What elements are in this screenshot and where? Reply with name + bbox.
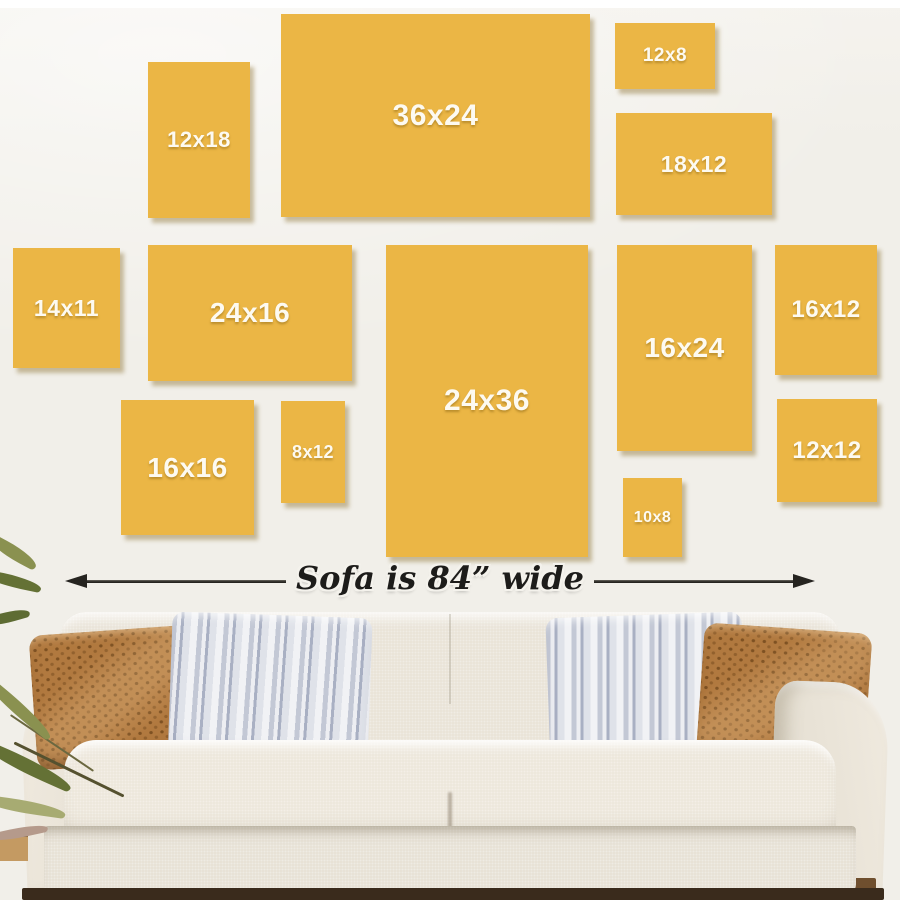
size-box-label: 14x11 bbox=[34, 295, 99, 322]
size-box-label: 24x16 bbox=[210, 297, 290, 329]
size-box-16x24: 16x24 bbox=[617, 245, 752, 451]
size-box-24x36: 24x36 bbox=[386, 245, 588, 557]
size-box-label: 8x12 bbox=[292, 442, 334, 463]
sofa-back-seam bbox=[449, 614, 451, 704]
size-box-16x12: 16x12 bbox=[775, 245, 877, 375]
size-box-label: 24x36 bbox=[444, 384, 530, 418]
canvas-size-guide-image: 12x1836x2412x818x1214x1124x1624x3616x241… bbox=[0, 0, 900, 900]
size-box-label: 16x24 bbox=[644, 332, 724, 364]
size-box-label: 12x12 bbox=[792, 437, 861, 465]
arrow-right-head-icon bbox=[793, 574, 815, 588]
size-box-label: 36x24 bbox=[393, 99, 479, 133]
arrow-line-right bbox=[594, 580, 793, 583]
size-box-12x18: 12x18 bbox=[148, 62, 250, 218]
size-box-label: 12x18 bbox=[167, 127, 231, 153]
sofa-width-label: Sofa is 84” wide bbox=[296, 559, 584, 597]
size-box-8x12: 8x12 bbox=[281, 401, 345, 503]
size-box-label: 16x16 bbox=[147, 452, 227, 484]
size-box-16x16: 16x16 bbox=[121, 400, 254, 535]
size-box-12x12: 12x12 bbox=[777, 399, 877, 502]
size-box-36x24: 36x24 bbox=[281, 14, 590, 217]
size-box-18x12: 18x12 bbox=[616, 113, 772, 215]
sofa-width-arrow: Sofa is 84” wide bbox=[65, 562, 815, 600]
size-box-label: 16x12 bbox=[791, 296, 860, 324]
size-box-label: 18x12 bbox=[661, 151, 727, 178]
arrow-left-head-icon bbox=[65, 574, 87, 588]
sofa-base bbox=[44, 826, 856, 896]
size-box-label: 10x8 bbox=[634, 509, 672, 527]
arrow-line-left bbox=[87, 580, 286, 583]
size-box-12x8: 12x8 bbox=[615, 23, 715, 89]
floor-shadow-line bbox=[22, 888, 884, 900]
size-box-label: 12x8 bbox=[643, 45, 687, 67]
size-box-14x11: 14x11 bbox=[13, 248, 120, 368]
size-box-10x8: 10x8 bbox=[623, 478, 682, 557]
size-box-24x16: 24x16 bbox=[148, 245, 352, 381]
